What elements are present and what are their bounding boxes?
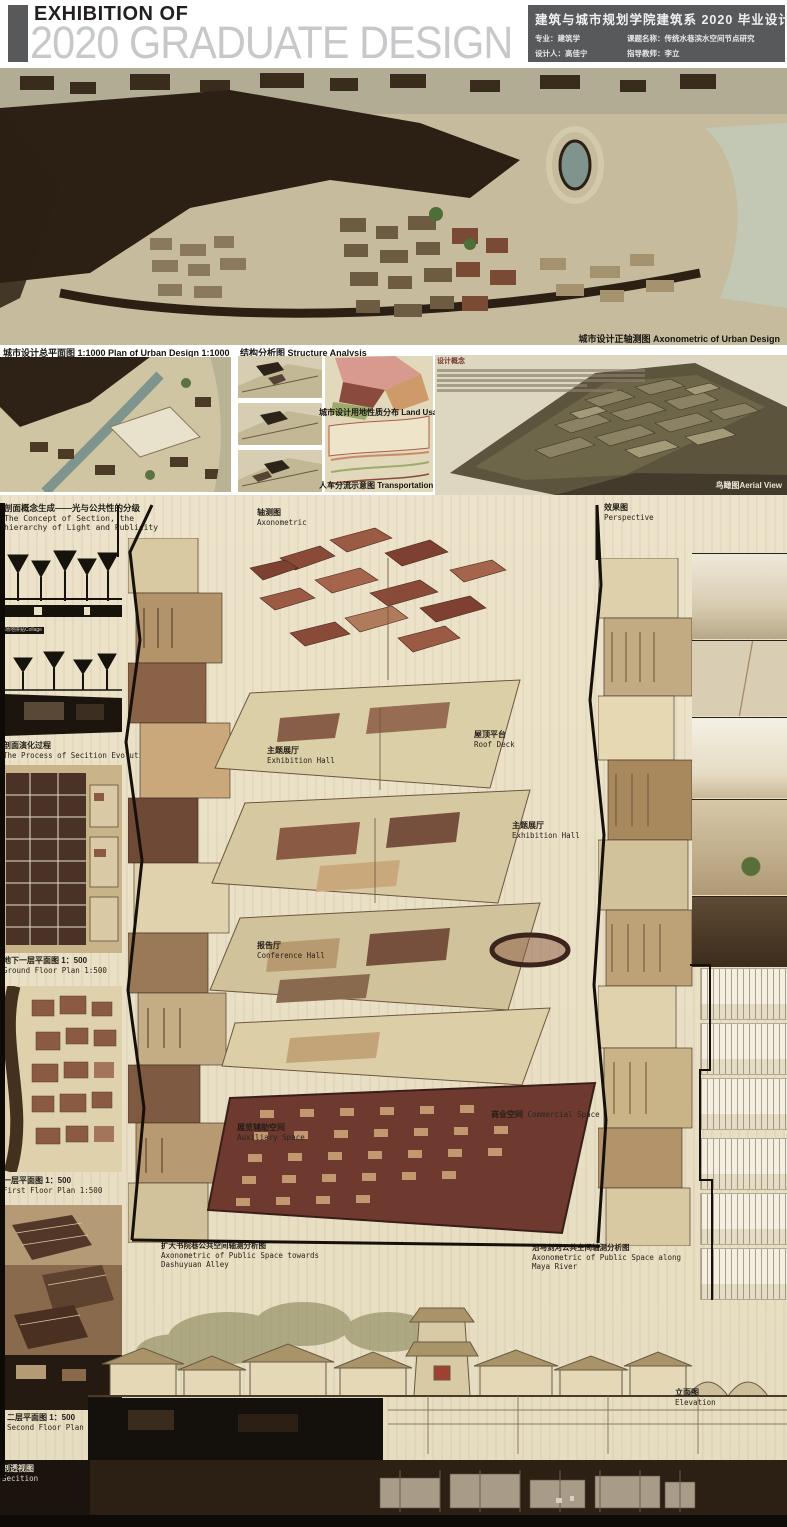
- advisor-label: 指导教师：李立: [627, 48, 778, 59]
- bottom-section-perspective: [0, 1460, 787, 1527]
- designer-label: 设计人：高佳宁: [535, 48, 627, 59]
- caption-aerial-view: 鸟瞰图Aerial View: [715, 480, 782, 491]
- label-exhibition-hall-1: 主题展厅 Exhibition Hall: [267, 745, 335, 765]
- exhibition-poster: EXHIBITION OF 2020 GRADUATE DESIGN 建筑与城市…: [0, 0, 787, 1527]
- caption-urban-axonometric: 城市设计正轴测图 Axonometric of Urban Design: [578, 332, 780, 345]
- label-conference-hall: 报告厅 Conference Hall: [257, 940, 325, 960]
- north-arrow-icon: ⌃: [398, 1241, 406, 1252]
- exhibition-title-cn: 建筑与城市规划学院建筑系 2020 毕业设计展: [535, 9, 778, 28]
- interior-render-2: [692, 640, 787, 716]
- header-accent-bar: [8, 5, 28, 62]
- basement-floor-plan: [2, 765, 122, 953]
- first-floor-plan: [2, 986, 122, 1172]
- caption-land-usage: 城市设计用地性质分布 Land Usage: [319, 407, 447, 418]
- caption-axonometric: 轴测图 Axonometric: [257, 507, 307, 527]
- structure-thumb-2: [238, 403, 322, 445]
- page-title: 2020 GRADUATE DESIGN: [30, 17, 512, 69]
- label-roof-deck: 屋顶平台 Roof Deck: [474, 729, 515, 749]
- exploded-axonometric: [130, 498, 610, 1246]
- major-label: 专业：建筑学: [535, 33, 627, 44]
- caption-public-space-dashuyuan: 扩大书院巷公共空间轴测分析图 Axonometric of Public Spa…: [161, 1240, 319, 1269]
- site-collage-sketch: [4, 543, 122, 631]
- design-concept-heading: 设计概念: [437, 356, 649, 366]
- urban-design-axonometric-map: [0, 68, 787, 345]
- structure-analysis-thumbnails: [238, 356, 322, 492]
- caption-ground-floor-plan: 地下一层平面图 1：500 Ground Floor Plan 1:500: [3, 955, 107, 975]
- label-commercial-space: 商业空间 Commercial Space: [491, 1104, 600, 1122]
- elevation-strip-2: [700, 1023, 787, 1075]
- caption-elevation: 立面图 Elevation: [675, 1387, 716, 1407]
- interior-render-4: [692, 799, 787, 895]
- caption-section-perspective: 剖透视图 Secition: [2, 1463, 38, 1483]
- interior-render-3: [692, 717, 787, 798]
- street-section-drawing: [88, 1278, 787, 1463]
- elevation-strip-1: [700, 968, 787, 1020]
- design-concept-block: 设计概念: [437, 356, 649, 394]
- caption-collage: 场地拼贴Collage: [3, 627, 44, 634]
- caption-public-space-maya-river: 沿马剑河公共空间轴测分析图 Axonometric of Public Spac…: [532, 1242, 681, 1271]
- elevation-strip-3: [700, 1078, 787, 1130]
- land-use-map: [325, 356, 433, 492]
- structure-thumb-1: [238, 356, 322, 398]
- project-info-box: 建筑与城市规划学院建筑系 2020 毕业设计展 专业：建筑学 课题名称：传统水巷…: [528, 5, 785, 62]
- elevation-strip-5: [700, 1193, 787, 1245]
- design-concept-paragraph: [437, 369, 649, 392]
- label-auxiliary-space: 展览辅助空间 Auxiliary Space: [237, 1122, 305, 1142]
- caption-first-floor-plan: 一层平面图 1：500 First Floor Plan 1:500: [3, 1175, 102, 1195]
- label-exhibition-hall-2: 主题展厅 Exhibition Hall: [512, 820, 580, 840]
- elevation-strip-4: [700, 1138, 787, 1190]
- topic-label: 课题名称：传统水巷滨水空间节点研究: [627, 33, 778, 44]
- urban-plan-image: [0, 357, 231, 492]
- section-evolution-sketch: [4, 640, 122, 738]
- caption-perspective: 效果图 Perspective: [604, 502, 654, 522]
- interior-render-5: [692, 896, 787, 967]
- structure-thumb-3: [238, 450, 322, 492]
- right-elevation-strip: [598, 558, 694, 1246]
- interior-render-1: [692, 553, 787, 639]
